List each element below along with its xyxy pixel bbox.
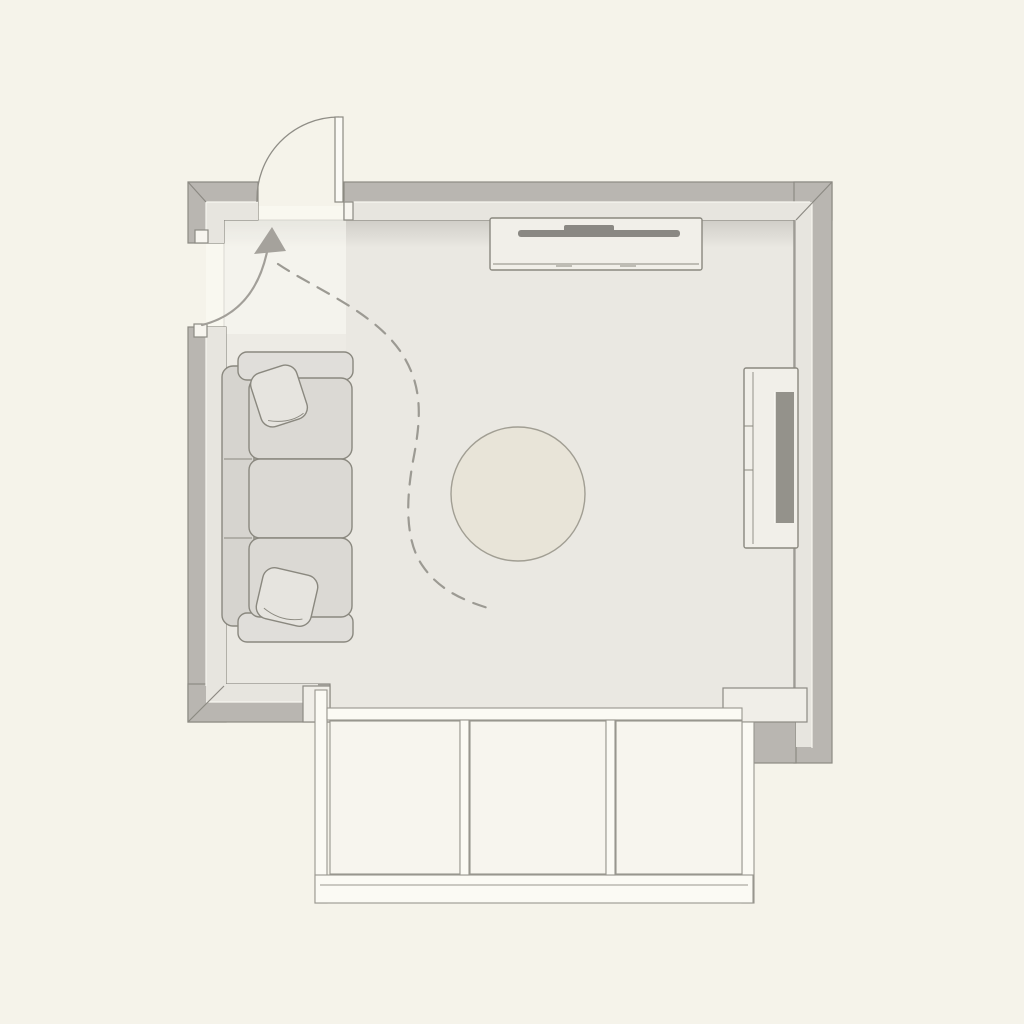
window-sill bbox=[315, 875, 753, 903]
window-frame-left bbox=[315, 690, 327, 903]
window-top-rail bbox=[327, 708, 742, 720]
window-pane-1 bbox=[330, 721, 460, 874]
floor-plan bbox=[0, 0, 1024, 1024]
sofa bbox=[222, 352, 353, 642]
sofa-seat-cushion-2 bbox=[249, 459, 352, 538]
window-mullion-2 bbox=[606, 720, 615, 875]
door-jamb-cap bbox=[344, 202, 353, 220]
window-pane-2 bbox=[470, 721, 606, 874]
window-pane-3 bbox=[616, 721, 742, 874]
wall-bevel-left-upper bbox=[206, 202, 224, 243]
tv-stand bbox=[564, 225, 614, 232]
round-rug bbox=[451, 427, 585, 561]
tv-unit-group bbox=[744, 368, 798, 548]
media-console-group bbox=[490, 218, 702, 270]
tv-unit-screen bbox=[775, 392, 794, 523]
floor-plan-canvas bbox=[0, 0, 1024, 1024]
door-stop-upper bbox=[195, 230, 208, 243]
door-stop-lower bbox=[194, 324, 207, 337]
bay-window bbox=[315, 690, 754, 903]
door-leaf bbox=[335, 117, 343, 202]
window-mullion-1 bbox=[460, 720, 469, 875]
